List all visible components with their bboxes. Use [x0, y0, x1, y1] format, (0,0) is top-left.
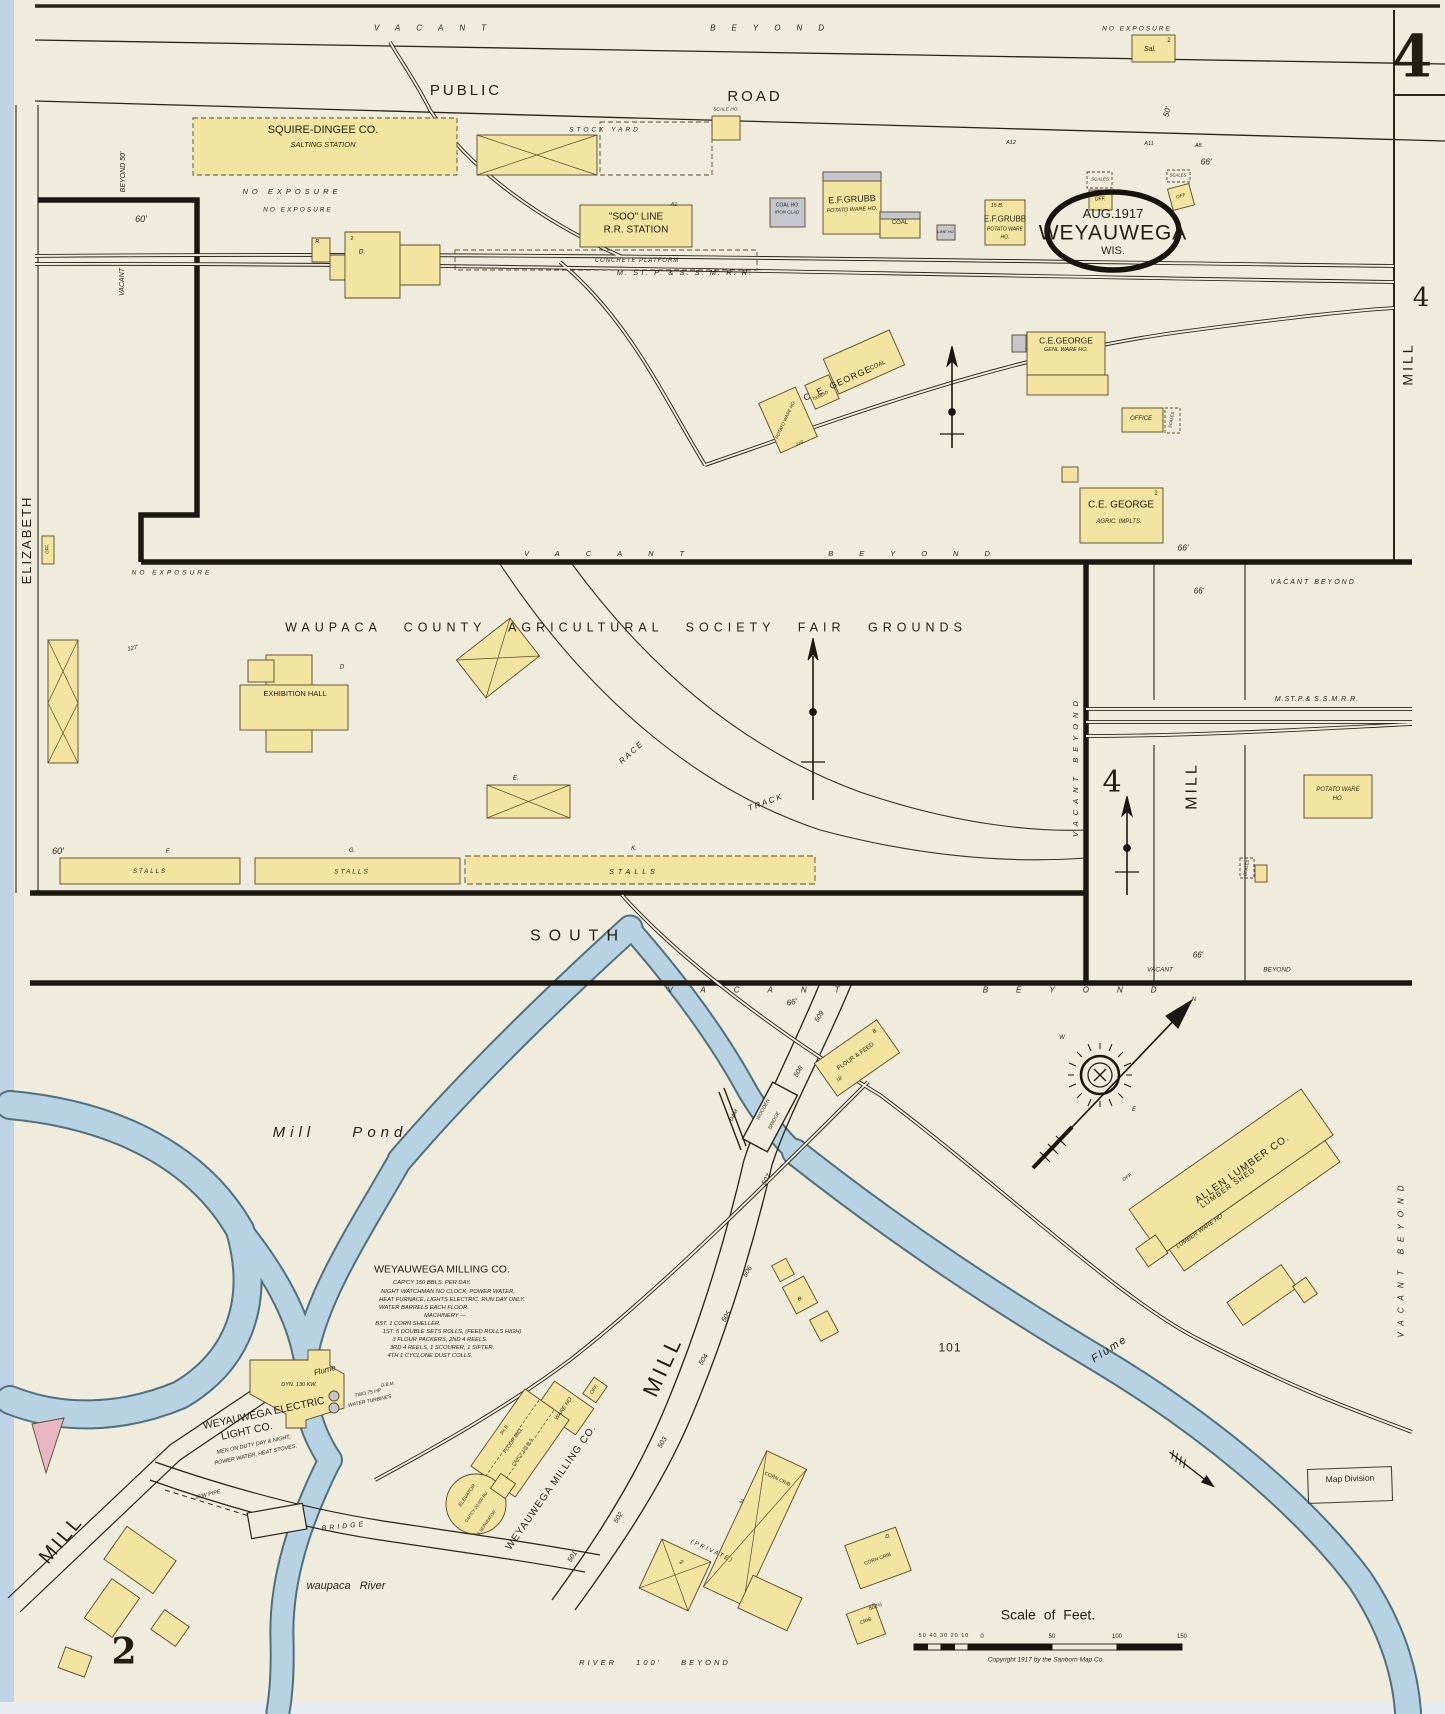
scale-zero: 0 — [980, 1634, 983, 1640]
scales-label-1: SCALES — [1091, 178, 1109, 183]
scale-bar — [914, 1644, 1182, 1650]
street-frontage-vacant-beyond-top: VACANT BEYOND — [374, 25, 840, 34]
stalls-label-1: STALLS — [133, 869, 167, 875]
dwelling-mark-r: R. — [315, 240, 321, 246]
building-george-implements — [1080, 488, 1163, 543]
milling-note-7: 1ST. 5 DOUBLE SETS ROLLS, (FEED ROLLS HI… — [383, 1329, 522, 1335]
railroad-name-2: M.ST.P.& S.S.M.R.R. — [1275, 696, 1359, 704]
stamp-date: AUG.1917 — [1083, 207, 1144, 221]
no-exposure-note: NO EXPOSURE — [1102, 25, 1172, 32]
scale-house-label: SCALE HO. — [713, 107, 739, 112]
building-mark-k: K. — [631, 846, 637, 852]
street-name-elizabeth: ELIZABETH — [20, 496, 34, 585]
storey-count-2: 2 — [350, 237, 353, 243]
lot-mark-a12: A12 — [1006, 141, 1016, 147]
dimension-60ft: 60' — [135, 215, 147, 225]
building-mark-g: G. — [349, 848, 355, 854]
scale-150: 150 — [1177, 1634, 1187, 1640]
lot-mark-a1: A1 — [671, 203, 678, 209]
building-label-saloon: Sal. — [1144, 46, 1156, 54]
milling-note-9: 3RD 4 REELS, 1 SCOURER, 1 SIFTER. — [390, 1345, 494, 1351]
iron-clad-label: IRON CLAD — [775, 211, 800, 216]
margin-note-vacant: VACANT — [119, 268, 127, 296]
adjacent-sheet-number: 2 — [111, 1633, 136, 1672]
rr-station-label: R.R. STATION — [604, 226, 669, 237]
stock-yard-label: STOCK YARD — [569, 126, 641, 133]
margin-note-vacant-beyond-1: VACANT BEYOND — [1072, 695, 1080, 837]
no-exposure-note-3: NO EXPOSURE — [263, 206, 333, 213]
building-mark-d: D — [340, 663, 345, 670]
scan-strip-left — [0, 0, 14, 1714]
sheet-number: 4 — [1392, 26, 1432, 89]
block-number-101: 101 — [938, 1342, 961, 1355]
storey-count: 2 — [1167, 38, 1170, 44]
milling-note-5: MACHINERY — — [424, 1313, 466, 1319]
building-mark-f: F. — [166, 849, 171, 855]
frontage-vacant: VACANT — [1147, 966, 1173, 973]
office-label-3: OFFICE — [1130, 416, 1152, 422]
margin-note-beyond-50: BEYOND 50' — [120, 152, 128, 193]
fairgrounds-title: WAUPACA COUNTY AGRICULTURAL SOCIETY FAIR… — [285, 621, 967, 635]
milling-co-title: WEYAUWEGA MILLING CO. — [374, 1264, 510, 1275]
dynamo-label: DYN. 130 KW. — [281, 1383, 317, 1389]
lot-mark-a11: A11 — [1144, 142, 1153, 148]
street-name-road: ROAD — [727, 89, 782, 105]
business-use-george-main: GENL WARE HO. — [1044, 348, 1088, 354]
dimension-66ft-2: 66' — [1177, 543, 1188, 552]
map-division-text: Map Division — [1326, 1474, 1375, 1485]
street-name-mill-top: MILL — [1400, 342, 1415, 385]
business-squire-dingee: SQUIRE-DINGEE CO. — [268, 125, 379, 137]
compass-west-letter: W — [1059, 1035, 1065, 1041]
no-exposure-note-4: NO EXPOSURE — [132, 569, 213, 576]
office-label-4: OFF. — [46, 544, 51, 554]
business-use-grubb-2b: HO. — [1001, 235, 1010, 240]
business-george-implements: C.E. GEORGE — [1088, 501, 1154, 512]
business-grubb-2: E.F.GRUBB — [984, 216, 1026, 225]
milling-note-2: NIGHT WATCHMAN NO CLOCK, POWER WATER, — [381, 1289, 515, 1295]
sanborn-map-sheet: VACANT BEYOND NO EXPOSURE Sal. 2 4 BEYON… — [0, 0, 1445, 1714]
street-frontage-vacant-beyond-fair: VACANT BEYOND — [524, 550, 1016, 558]
frontage-beyond: BEYOND — [1263, 966, 1290, 973]
building-mark-d-2: D. — [885, 1535, 891, 1541]
potato-warehouse-label-2a: POTATO WARE — [1316, 787, 1359, 793]
coal-label: COAL — [892, 220, 908, 226]
street-name-public: PUBLIC — [430, 83, 502, 99]
stalls-label-2: STALLS — [334, 868, 370, 875]
street-frontage-vacant-beyond-bottom: VACANT BEYOND — [667, 987, 1184, 996]
copyright-note: Copyright 1917 by the Sanborn Map Co. — [988, 1656, 1104, 1663]
frontage-vacant-beyond-2: VACANT BEYOND — [1270, 579, 1356, 587]
scale-100: 100 — [1112, 1634, 1122, 1640]
building-mark-e: E. — [513, 774, 519, 781]
river-name: waupaca River — [307, 1581, 386, 1593]
scale-title: Scale of Feet. — [1001, 1607, 1095, 1622]
stamp-city: WEYAUWEGA — [1039, 223, 1188, 246]
stamp-state: WIS. — [1101, 246, 1125, 258]
dimension-66ft-5: 66' — [786, 998, 798, 1008]
concrete-platform-label: CONCRETE PLATFORM — [595, 258, 680, 264]
no-exposure-note-2: NO EXPOSURE — [242, 188, 341, 196]
milling-note-1: CAP'CY 150 BBLS. PER DAY. — [393, 1280, 471, 1286]
dimension-66ft-4: 66' — [1193, 952, 1203, 961]
dimension-66ft-3: 66' — [1194, 588, 1204, 597]
lot-mark-15b: 15 B. — [991, 204, 1004, 210]
scales-label-2: SCALES — [1170, 174, 1187, 179]
margin-note-vacant-beyond-2: VACANT BEYOND — [1398, 1178, 1407, 1337]
stalls-label-3: STALLS — [609, 869, 659, 877]
milling-note-4: WATER BARRELS EACH FLOOR. — [379, 1305, 469, 1311]
potato-warehouse-label-2b: HO. — [1333, 796, 1344, 802]
dimension-60ft-2: 60' — [52, 847, 64, 857]
business-use-george-implements: AGRIC. IMPLTS. — [1096, 519, 1141, 525]
business-george-main: C.E.GEORGE — [1039, 336, 1093, 345]
soo-line-label: "SOO" LINE — [609, 213, 663, 224]
milling-note-3: HEAT FURNACE, LIGHTS ELECTRIC. RUN DAY O… — [379, 1297, 525, 1303]
office-label-1: OFF. — [1095, 197, 1106, 202]
street-name-south: SOUTH — [530, 927, 626, 944]
compass-east-letter: E — [1132, 1107, 1136, 1113]
compass-north-letter: N — [1192, 997, 1196, 1003]
exhibition-hall-label: EXHIBITION HALL — [263, 690, 326, 698]
block-number-4-mid: 4 — [1102, 767, 1121, 799]
milling-note-6: BST. 1 CORN SHELLER. — [375, 1321, 441, 1327]
water-name-mill-pond: Mill Pond — [273, 1125, 408, 1141]
railroad-name: M. ST. P. & S. S. M. R. R. — [617, 269, 754, 277]
lot-mark-a8: A8. — [1195, 144, 1203, 150]
milling-note-8: 3 FLOUR PACKERS, 2ND 4 REELS. — [392, 1337, 487, 1343]
scale-left-ticks: 50 40 30 20 10 — [919, 1634, 970, 1640]
street-name-mill-mid: MILL — [1183, 762, 1200, 810]
business-use-salting-station: SALTING STATION — [290, 141, 355, 149]
milling-note-10: 4TH 1 CYCLONE DUST COLLS. — [387, 1353, 472, 1359]
lime-house-label: LIME HO. — [937, 230, 955, 234]
dimension-66ft-1: 66' — [1200, 157, 1211, 166]
scan-strip-bottom — [0, 1702, 1445, 1714]
river-beyond-note: RIVER 100' BEYOND — [579, 1659, 731, 1667]
business-use-grubb-2a: POTATO WARE — [987, 227, 1023, 232]
coal-house-label: COAL HO — [776, 203, 798, 208]
block-number-4-top: 4 — [1413, 284, 1430, 312]
scale-50: 50 — [1049, 1634, 1056, 1640]
dwelling-mark-d: D. — [359, 248, 366, 255]
storey-count-3: 2 — [1154, 491, 1157, 497]
